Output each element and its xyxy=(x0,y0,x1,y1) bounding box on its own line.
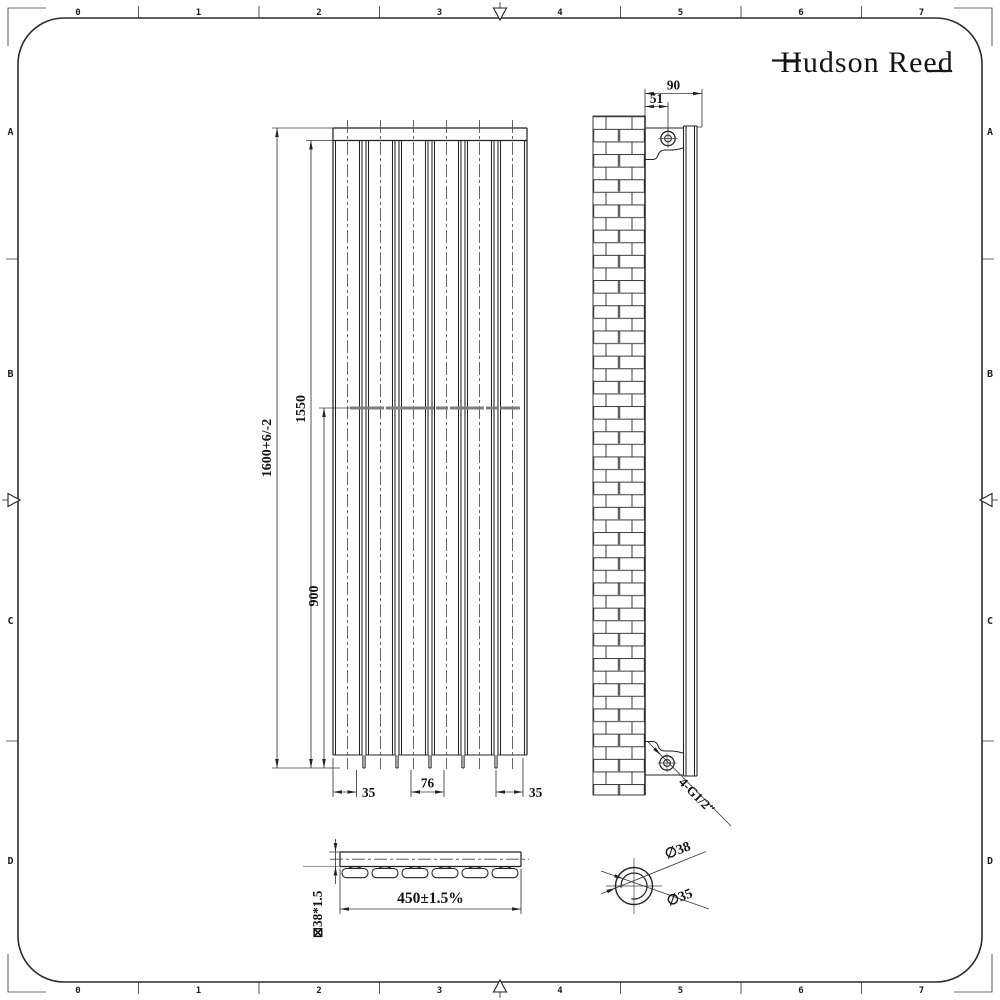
dim-overall-height: 1600+6/-2 xyxy=(260,419,275,478)
drawing-sheet: 0 1 2 3 4 5 6 7 0 1 2 3 4 5 6 7 A B C D xyxy=(0,0,1000,1000)
dim-tube-section: ⊠38*1.5 xyxy=(310,890,325,938)
dim-bottom-left: 35 xyxy=(362,785,376,800)
technical-drawing: 0 1 2 3 4 5 6 7 0 1 2 3 4 5 6 7 A B C D xyxy=(0,0,1000,1000)
row-label: C xyxy=(7,616,13,627)
row-label: A xyxy=(7,127,13,138)
col-label: 0 xyxy=(75,8,80,18)
row-label: C xyxy=(987,616,993,627)
col-label: 6 xyxy=(798,986,803,996)
row-label: A xyxy=(987,127,993,138)
row-label: D xyxy=(987,856,993,867)
col-label: 5 xyxy=(678,986,683,996)
brand-name: Hudson Reed xyxy=(780,46,953,79)
brand-logo: Hudson Reed xyxy=(772,46,954,79)
col-label: 4 xyxy=(557,986,563,996)
row-label: B xyxy=(7,369,13,380)
col-label: 7 xyxy=(919,8,924,18)
col-label: 3 xyxy=(437,986,442,996)
dim-bracket-span: 900 xyxy=(307,586,322,607)
dim-depth: 90 xyxy=(667,78,681,93)
dim-width: 450±1.5% xyxy=(397,890,464,907)
dim-upper-height: 1550 xyxy=(294,395,309,423)
col-label: 2 xyxy=(316,986,321,996)
col-label: 4 xyxy=(557,8,563,18)
row-label: B xyxy=(987,369,993,380)
col-label: 3 xyxy=(437,8,442,18)
col-label: 6 xyxy=(798,8,803,18)
dim-bottom-center: 76 xyxy=(421,776,435,791)
col-label: 1 xyxy=(196,986,201,996)
col-label: 1 xyxy=(196,8,201,18)
col-label: 0 xyxy=(75,986,80,996)
col-label: 5 xyxy=(678,8,683,18)
col-label: 2 xyxy=(316,8,321,18)
brick-wall xyxy=(593,116,645,795)
row-label: D xyxy=(7,856,13,867)
col-label: 7 xyxy=(919,986,924,996)
dim-wall-offset: 51 xyxy=(650,91,663,106)
dim-bottom-right: 35 xyxy=(529,785,543,800)
